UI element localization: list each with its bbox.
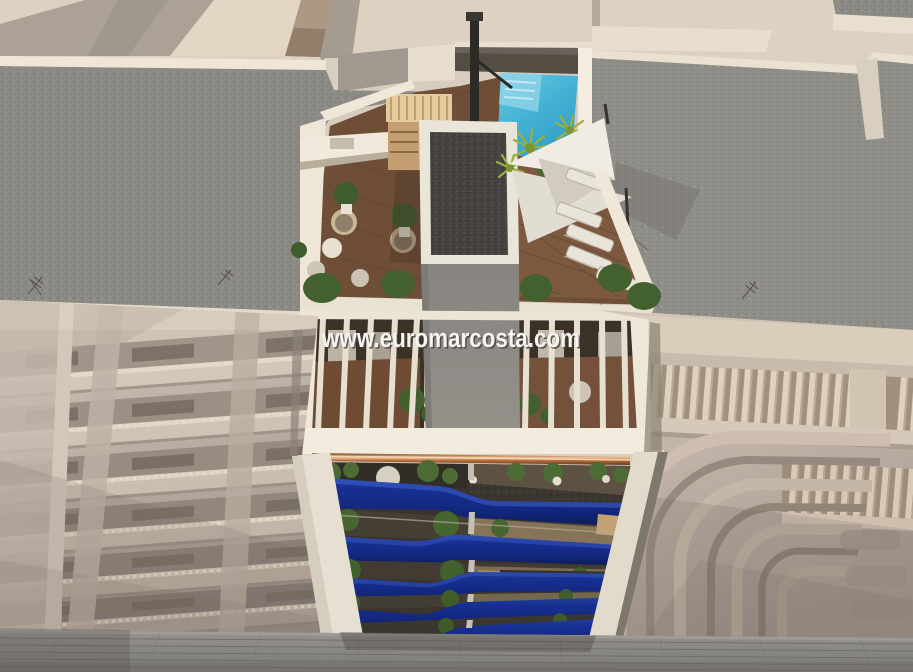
- svg-text:www.euromarcosta.com: www.euromarcosta.com: [321, 323, 580, 353]
